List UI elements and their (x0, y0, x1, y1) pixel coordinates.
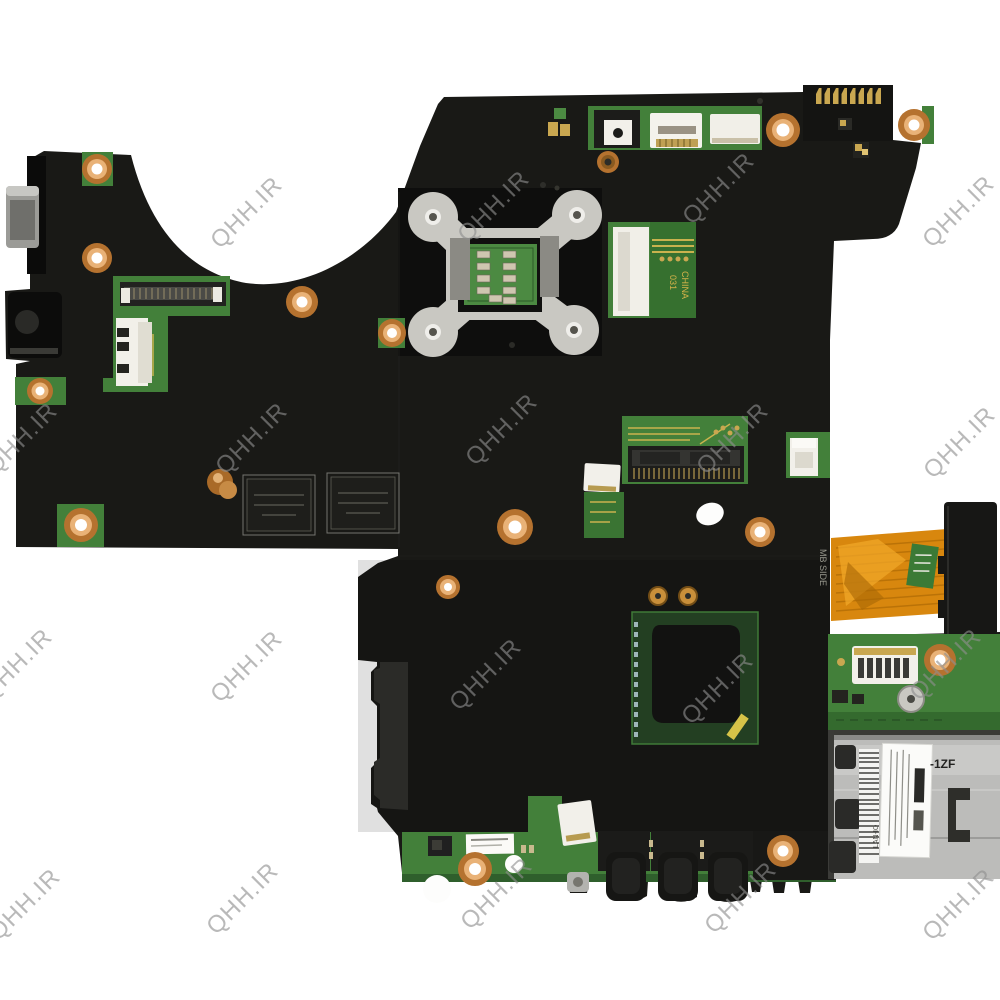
audio-jack-2 (651, 831, 703, 901)
small-component (832, 690, 848, 703)
small-component (560, 124, 570, 136)
small-component (548, 122, 558, 136)
card-reader-marking: -1ZF (930, 757, 955, 771)
thermal-pad (540, 236, 559, 297)
pcb-patch-cpu-right: 031 CHINA (608, 222, 696, 318)
pcb-marking-country: CHINA (680, 271, 690, 299)
thermal-pad (450, 238, 470, 300)
small-ffc-connector-left (583, 463, 624, 538)
mb-side-marking: MB SIDE (818, 549, 828, 586)
board-edge-notch (423, 875, 451, 903)
left-audio-connector (8, 292, 62, 358)
memory-chip-1 (243, 475, 315, 535)
bracket-screw (429, 213, 437, 221)
top-connector-2-pins (656, 139, 698, 147)
motherboard-illustration: 031 CHINA (0, 0, 1000, 1000)
gpu-chip (632, 612, 758, 744)
card-reader-slot: -1ZF LAN-IO (828, 730, 1000, 879)
lower-board-shade (358, 560, 830, 832)
small-component (554, 108, 566, 119)
flex-cable-assembly: MB SIDE (818, 502, 997, 641)
audio-jack-1 (598, 831, 650, 901)
card-reader-sticker (880, 743, 933, 857)
battery-connector (803, 85, 893, 141)
memory-chip-2 (327, 473, 399, 533)
card-reader-section: -1ZF LAN-IO (828, 634, 1000, 879)
vga-port (6, 156, 46, 274)
bracket-screw (570, 326, 578, 334)
flex-end-connector (944, 502, 997, 641)
board-hole (505, 855, 523, 873)
bracket-screw (429, 328, 437, 336)
audio-jack-3 (701, 831, 753, 901)
expresscard-connector-area (622, 416, 748, 484)
motherboard-photo: 031 CHINA (0, 0, 1000, 1000)
gpu-die (652, 625, 740, 723)
small-connector-right (786, 432, 830, 478)
small-component (852, 694, 864, 704)
card-reader-side-marking: LAN-IO (873, 824, 880, 848)
pcb-label (466, 834, 514, 855)
pcb-marking-number: 031 (668, 275, 678, 290)
test-pad (837, 658, 845, 666)
bracket-screw (573, 211, 581, 219)
